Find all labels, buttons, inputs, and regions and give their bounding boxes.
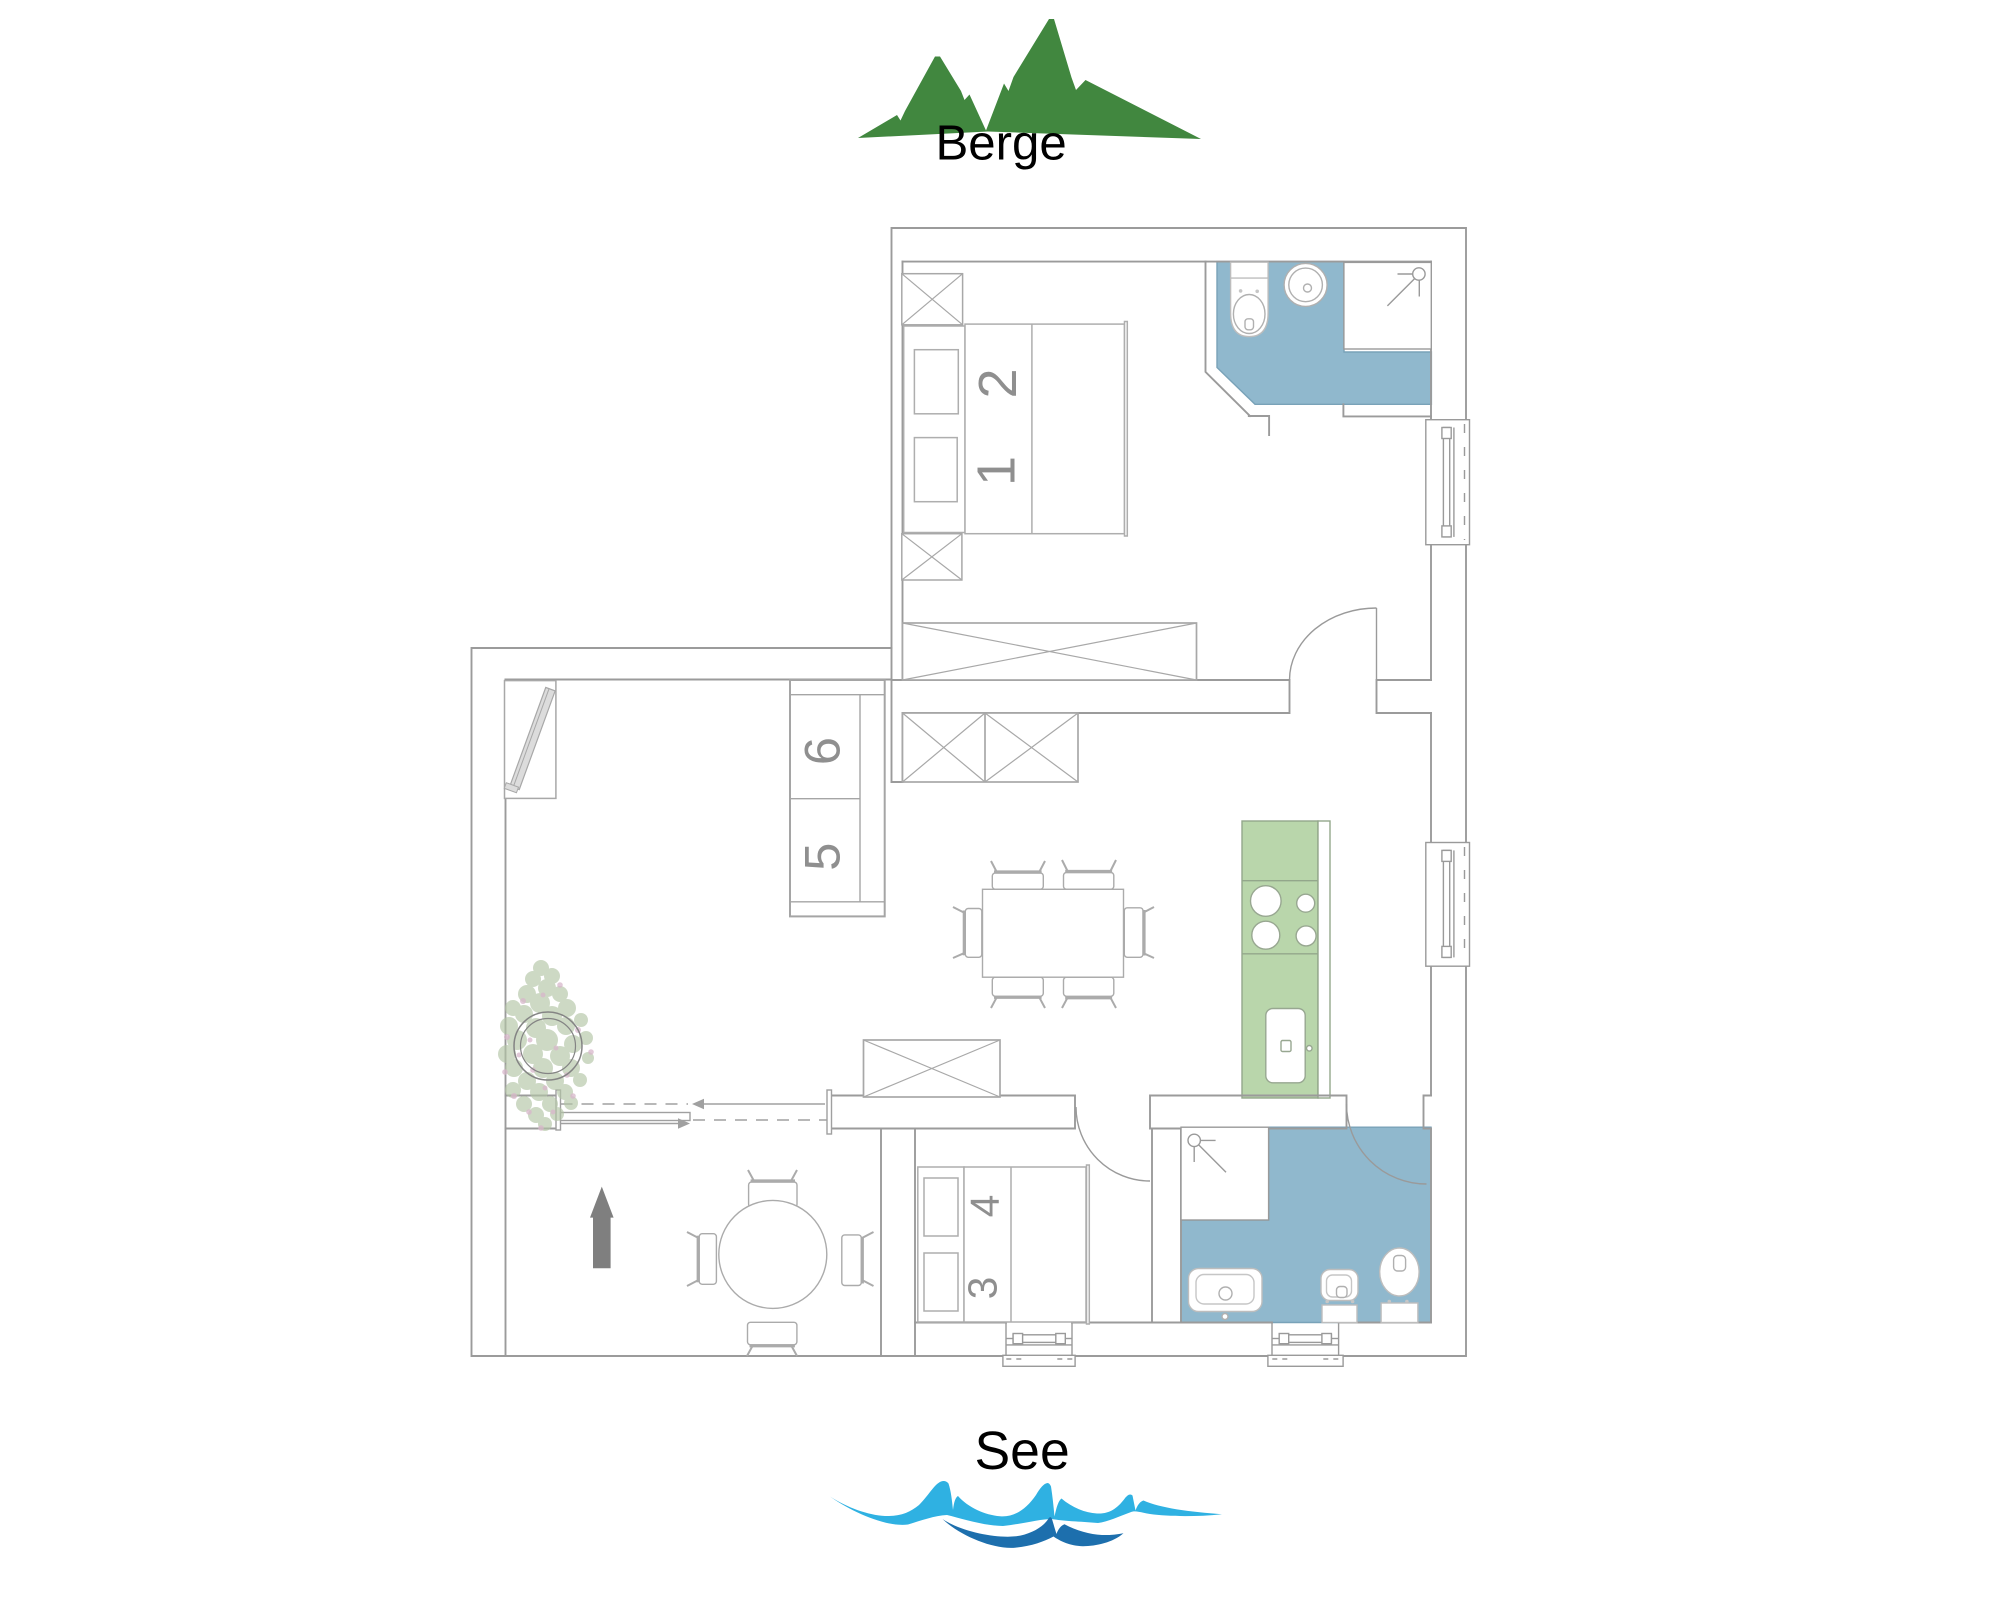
svg-text:2: 2 (968, 368, 1028, 398)
svg-text:1: 1 (967, 456, 1027, 486)
svg-text:6: 6 (794, 737, 851, 765)
svg-text:3: 3 (960, 1277, 1006, 1300)
svg-text:Berge: Berge (936, 116, 1067, 171)
svg-text:See: See (975, 1422, 1070, 1481)
svg-text:5: 5 (793, 843, 850, 871)
svg-text:4: 4 (962, 1195, 1008, 1218)
